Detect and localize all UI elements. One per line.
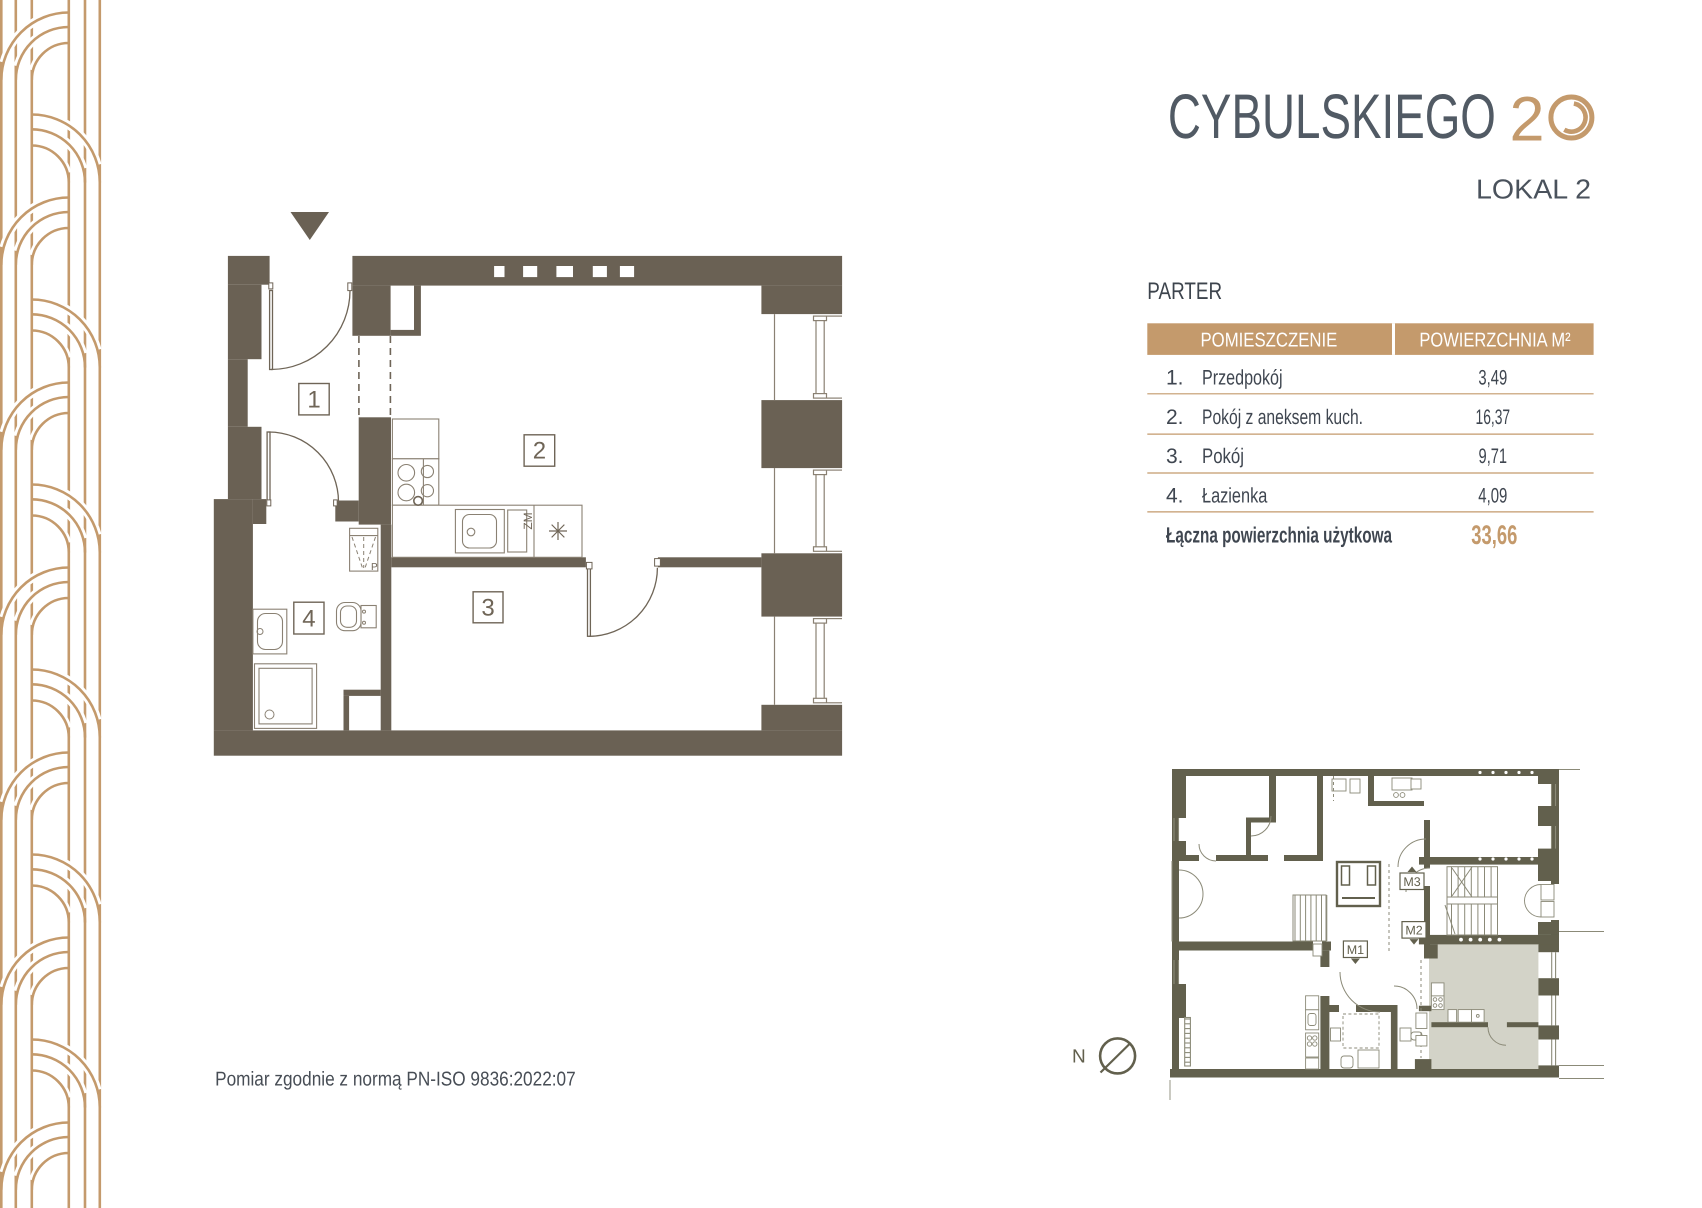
svg-text:P: P xyxy=(371,562,378,573)
svg-text:CYBULSKIEGO: CYBULSKIEGO xyxy=(1168,82,1496,152)
svg-text:1.: 1. xyxy=(1166,367,1184,390)
svg-text:Łazienka: Łazienka xyxy=(1202,484,1268,507)
svg-text:Przedpokój: Przedpokój xyxy=(1202,367,1283,390)
svg-text:33,66: 33,66 xyxy=(1471,520,1517,550)
svg-text:2.: 2. xyxy=(1166,406,1184,429)
svg-text:4: 4 xyxy=(302,606,315,633)
svg-text:2: 2 xyxy=(533,438,546,465)
svg-text:LOKAL 2: LOKAL 2 xyxy=(1476,174,1591,205)
svg-text:9,71: 9,71 xyxy=(1479,445,1508,468)
svg-text:Pokój z aneksem kuch.: Pokój z aneksem kuch. xyxy=(1202,406,1363,429)
svg-text:4,09: 4,09 xyxy=(1478,484,1507,507)
svg-text:Łączna powierzchnia użytkowa: Łączna powierzchnia użytkowa xyxy=(1166,523,1393,548)
svg-text:3.: 3. xyxy=(1166,445,1184,468)
svg-text:Pomiar zgodnie z normą PN-ISO: Pomiar zgodnie z normą PN-ISO 9836:2022:… xyxy=(215,1069,576,1091)
svg-text:3: 3 xyxy=(481,594,494,621)
svg-text:1: 1 xyxy=(307,386,320,413)
svg-text:2: 2 xyxy=(1510,85,1545,155)
svg-text:PARTER: PARTER xyxy=(1147,278,1222,305)
svg-text:ZM: ZM xyxy=(521,512,535,529)
svg-text:3,49: 3,49 xyxy=(1478,367,1507,390)
svg-text:M2: M2 xyxy=(1405,923,1422,937)
svg-text:POMIESZCZENIE: POMIESZCZENIE xyxy=(1201,329,1338,351)
svg-text:Pokój: Pokój xyxy=(1202,445,1244,468)
svg-text:16,37: 16,37 xyxy=(1476,406,1511,429)
svg-text:4.: 4. xyxy=(1166,484,1184,507)
svg-text:M3: M3 xyxy=(1403,875,1420,889)
svg-text:N: N xyxy=(1072,1047,1086,1068)
svg-text:POWIERZCHNIA M²: POWIERZCHNIA M² xyxy=(1419,329,1570,351)
svg-text:M1: M1 xyxy=(1347,943,1364,957)
